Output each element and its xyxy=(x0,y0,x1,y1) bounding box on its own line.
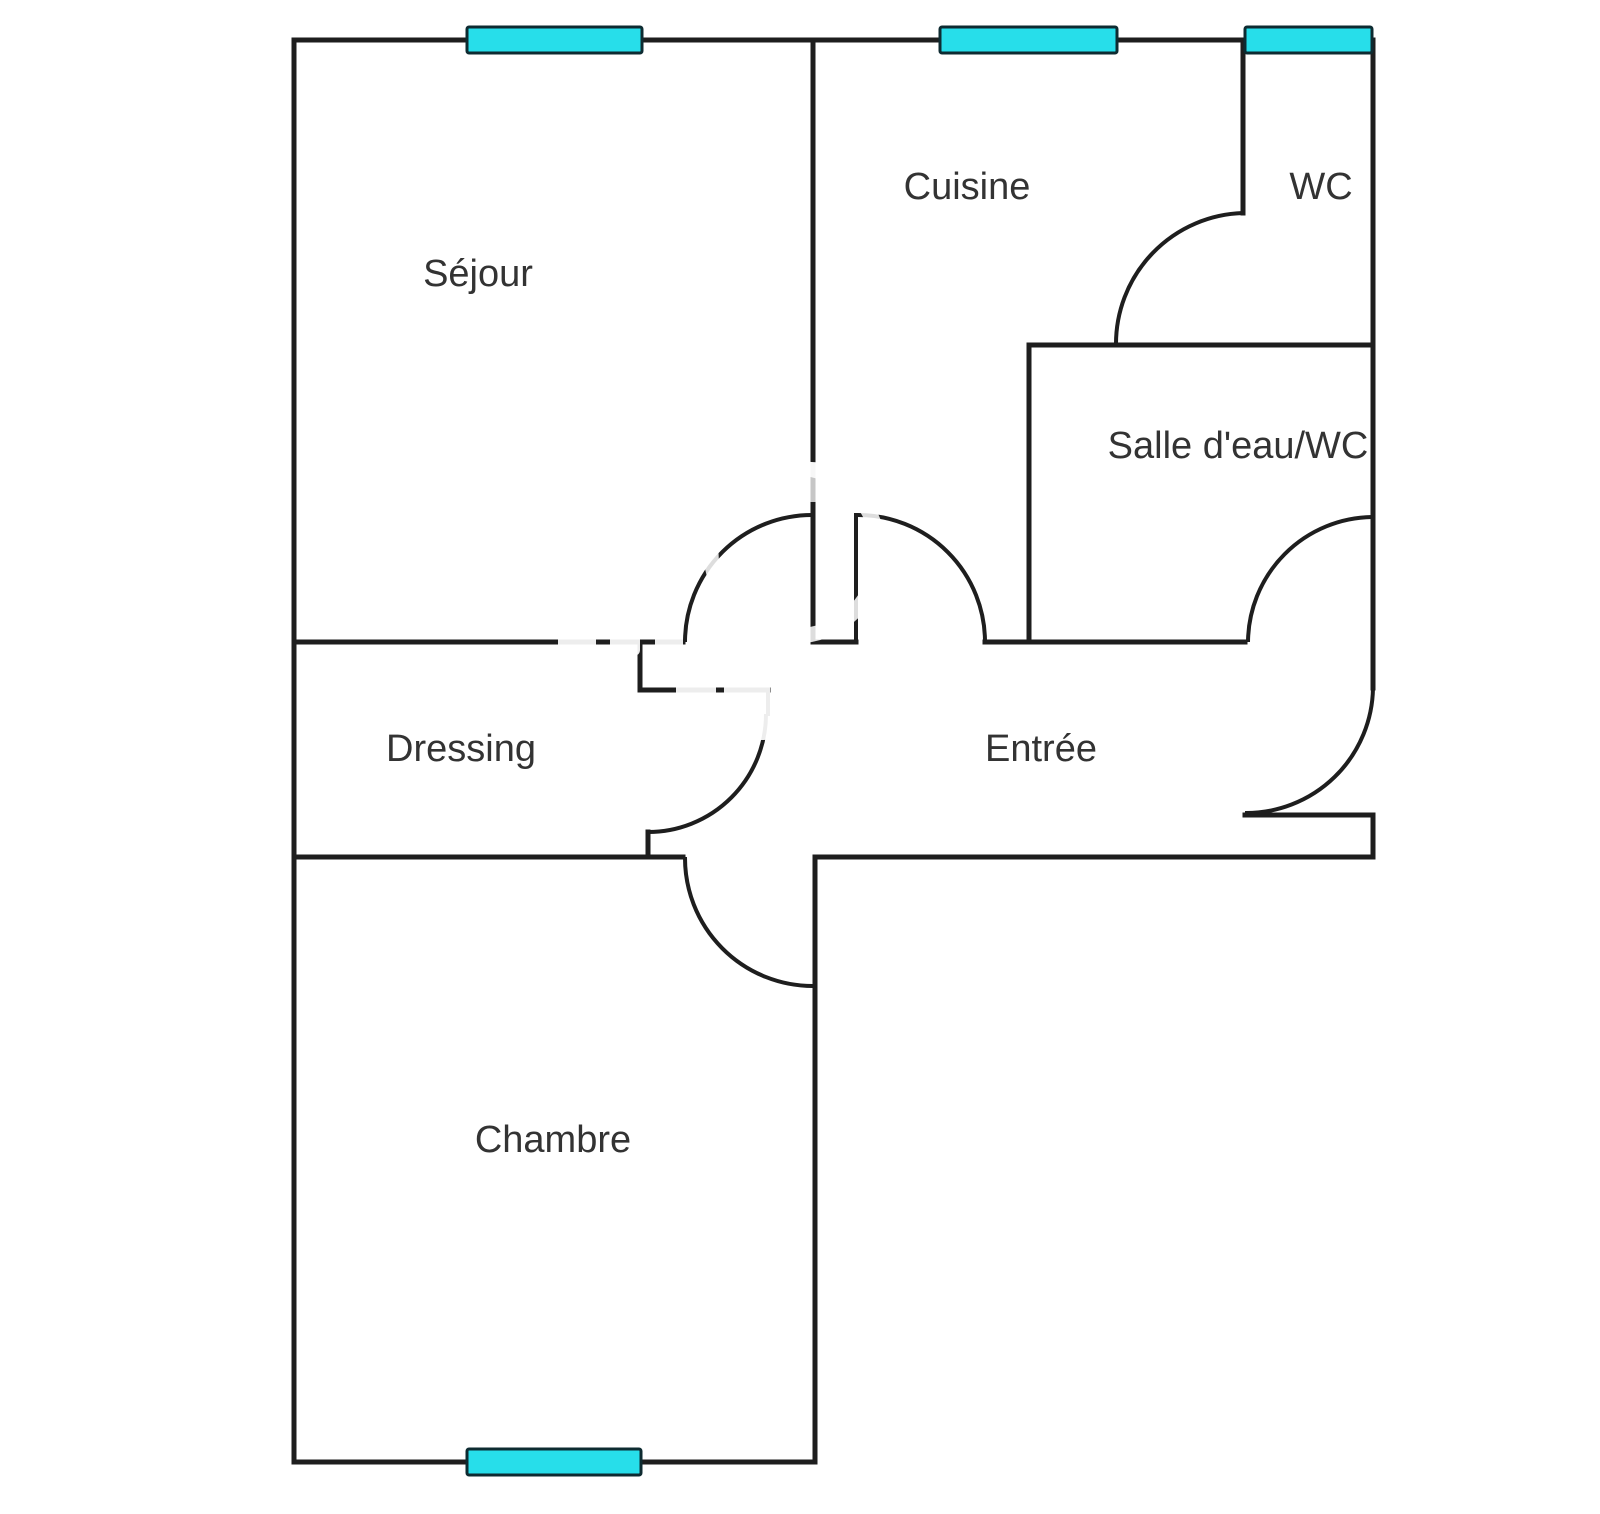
room-label-wc: WC xyxy=(1289,166,1352,208)
watermark-layer xyxy=(558,462,879,740)
watermark-patch-1 xyxy=(558,620,596,656)
watermark-ring xyxy=(711,468,879,636)
doors-layer xyxy=(648,213,1373,986)
window-sejour xyxy=(467,27,642,53)
window-wc xyxy=(1245,27,1372,53)
watermark-patch-2 xyxy=(610,616,640,656)
watermark-patch-6 xyxy=(805,462,821,502)
room-label-cuisine: Cuisine xyxy=(904,166,1031,208)
floor-plan: SéjourCuisineWCSalle d'eau/WCDressingEnt… xyxy=(0,0,1600,1514)
room-label-dressing: Dressing xyxy=(386,728,536,770)
room-label-entree: Entrée xyxy=(985,728,1097,770)
chambre-door-arc xyxy=(685,857,813,986)
room-label-salle-deau-wc: Salle d'eau/WC xyxy=(1108,425,1369,467)
room-label-sejour: Séjour xyxy=(423,253,533,295)
window-cuisine xyxy=(940,27,1117,53)
floor-plan-page: SéjourCuisineWCSalle d'eau/WCDressingEnt… xyxy=(0,0,1600,1514)
watermark-patch-5 xyxy=(724,682,770,740)
watermark-patch-4 xyxy=(676,678,716,740)
watermark-patch-3 xyxy=(655,612,683,656)
room-labels-layer: SéjourCuisineWCSalle d'eau/WCDressingEnt… xyxy=(386,166,1368,1161)
windows-layer xyxy=(467,27,1372,1475)
window-chambre xyxy=(467,1449,641,1475)
wc-door-arc xyxy=(1116,213,1243,345)
room-label-chambre: Chambre xyxy=(475,1119,631,1161)
salledeau-door-arc xyxy=(1248,517,1372,642)
front-door-arc xyxy=(1245,688,1373,813)
